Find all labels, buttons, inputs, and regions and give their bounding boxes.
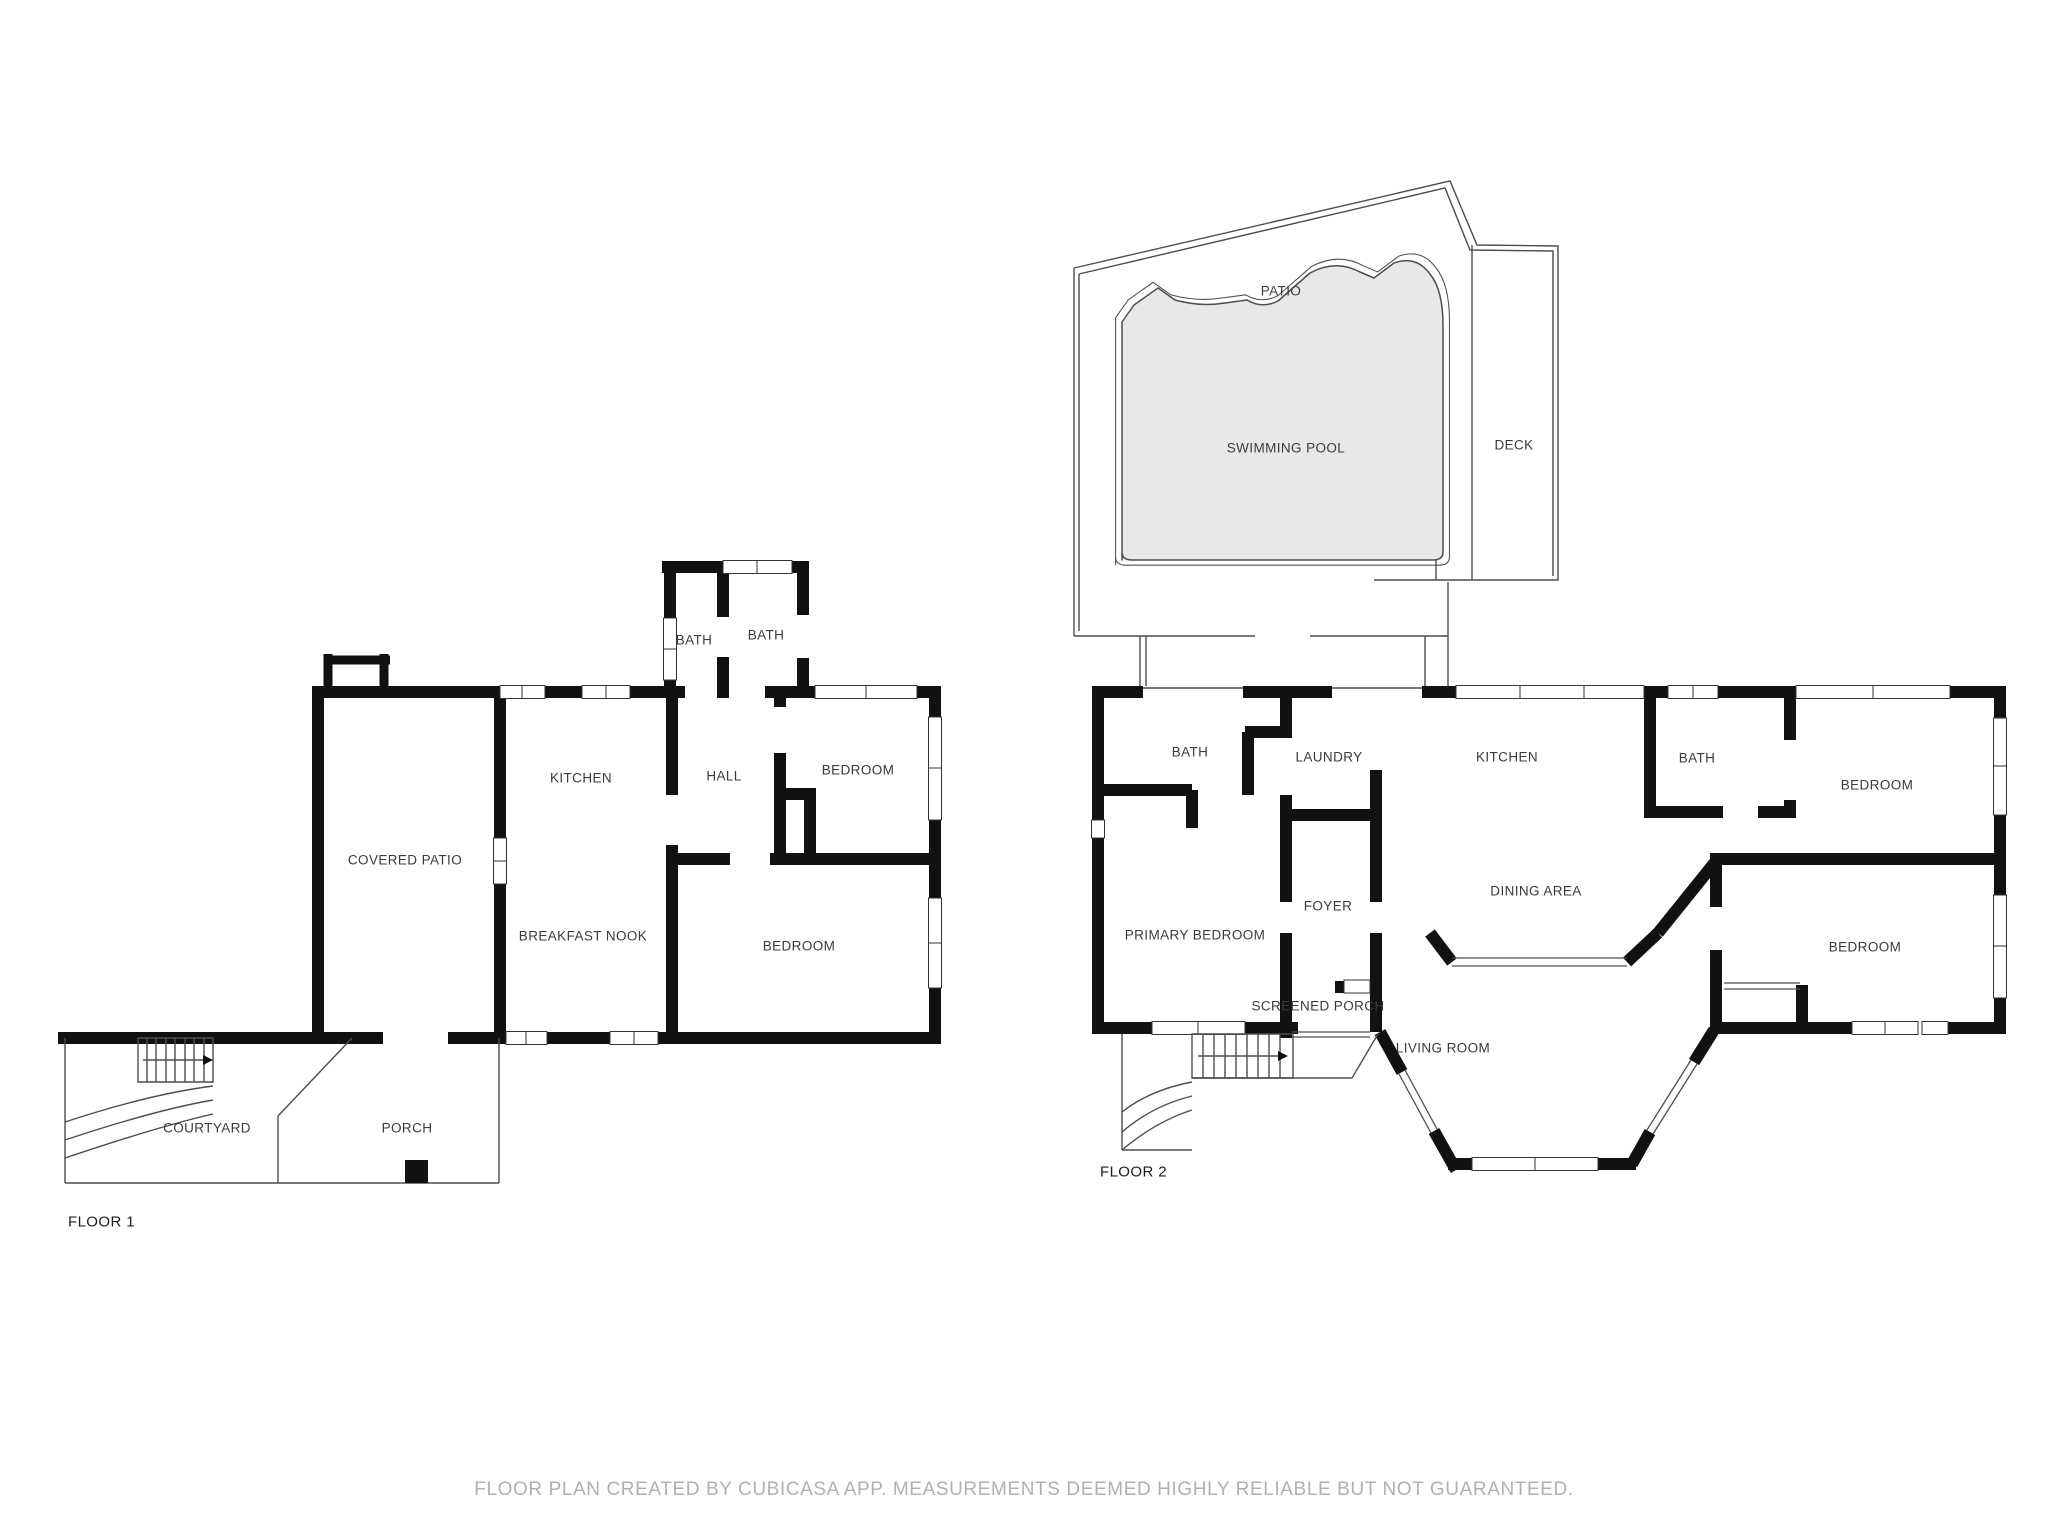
label-f2-foyer: FOYER: [1304, 899, 1353, 914]
floor-plan-page: PATIO SWIMMING POOL DECK COVERED PATIO K…: [0, 0, 2048, 1536]
label-f2-dining-area: DINING AREA: [1490, 884, 1581, 899]
label-deck: DECK: [1494, 438, 1533, 453]
floor-plan-drawing: [0, 0, 2048, 1536]
floor1-stairs-arrow: [203, 1055, 213, 1065]
swimming-pool-shape: [1116, 254, 1450, 565]
label-f2-bath-right: BATH: [1679, 751, 1716, 766]
floor1-outdoor-lines: [65, 1038, 499, 1183]
label-f1-bath-a: BATH: [676, 633, 713, 648]
label-f1-covered-patio: COVERED PATIO: [348, 853, 462, 868]
label-floor2: FLOOR 2: [1100, 1164, 1167, 1181]
label-f1-bath-b: BATH: [748, 628, 785, 643]
floor1-porch-column: [405, 1160, 428, 1183]
label-f1-porch: PORCH: [382, 1121, 433, 1136]
label-swimming-pool: SWIMMING POOL: [1227, 441, 1345, 456]
label-floor1: FLOOR 1: [68, 1214, 135, 1231]
label-f2-laundry: LAUNDRY: [1295, 750, 1362, 765]
label-f1-breakfast-nook: BREAKFAST NOOK: [519, 929, 647, 944]
label-f2-bath-left: BATH: [1172, 745, 1209, 760]
footer-disclaimer: FLOOR PLAN CREATED BY CUBICASA APP. MEAS…: [474, 1479, 1574, 1501]
label-f1-hall: HALL: [706, 769, 741, 784]
windows: [494, 561, 2007, 1171]
label-f2-bedroom-top: BEDROOM: [1841, 778, 1914, 793]
floor2-stairs-arrow: [1278, 1051, 1288, 1061]
label-f2-living-room: LIVING ROOM: [1396, 1041, 1490, 1056]
label-f2-primary-bedroom: PRIMARY BEDROOM: [1125, 928, 1266, 943]
floor2-outdoor-lines: [1122, 1034, 1378, 1150]
label-f2-screened-porch: SCREENED PORCH: [1251, 999, 1384, 1014]
label-f1-courtyard: COURTYARD: [163, 1121, 251, 1136]
label-f2-kitchen: KITCHEN: [1476, 750, 1538, 765]
label-patio: PATIO: [1261, 284, 1302, 299]
label-f1-bedroom-bottom: BEDROOM: [763, 939, 836, 954]
floor1-walls: [58, 561, 941, 1044]
label-f2-bedroom-bottom: BEDROOM: [1829, 940, 1902, 955]
label-f1-kitchen: KITCHEN: [550, 771, 612, 786]
label-f1-bedroom-top: BEDROOM: [822, 763, 895, 778]
